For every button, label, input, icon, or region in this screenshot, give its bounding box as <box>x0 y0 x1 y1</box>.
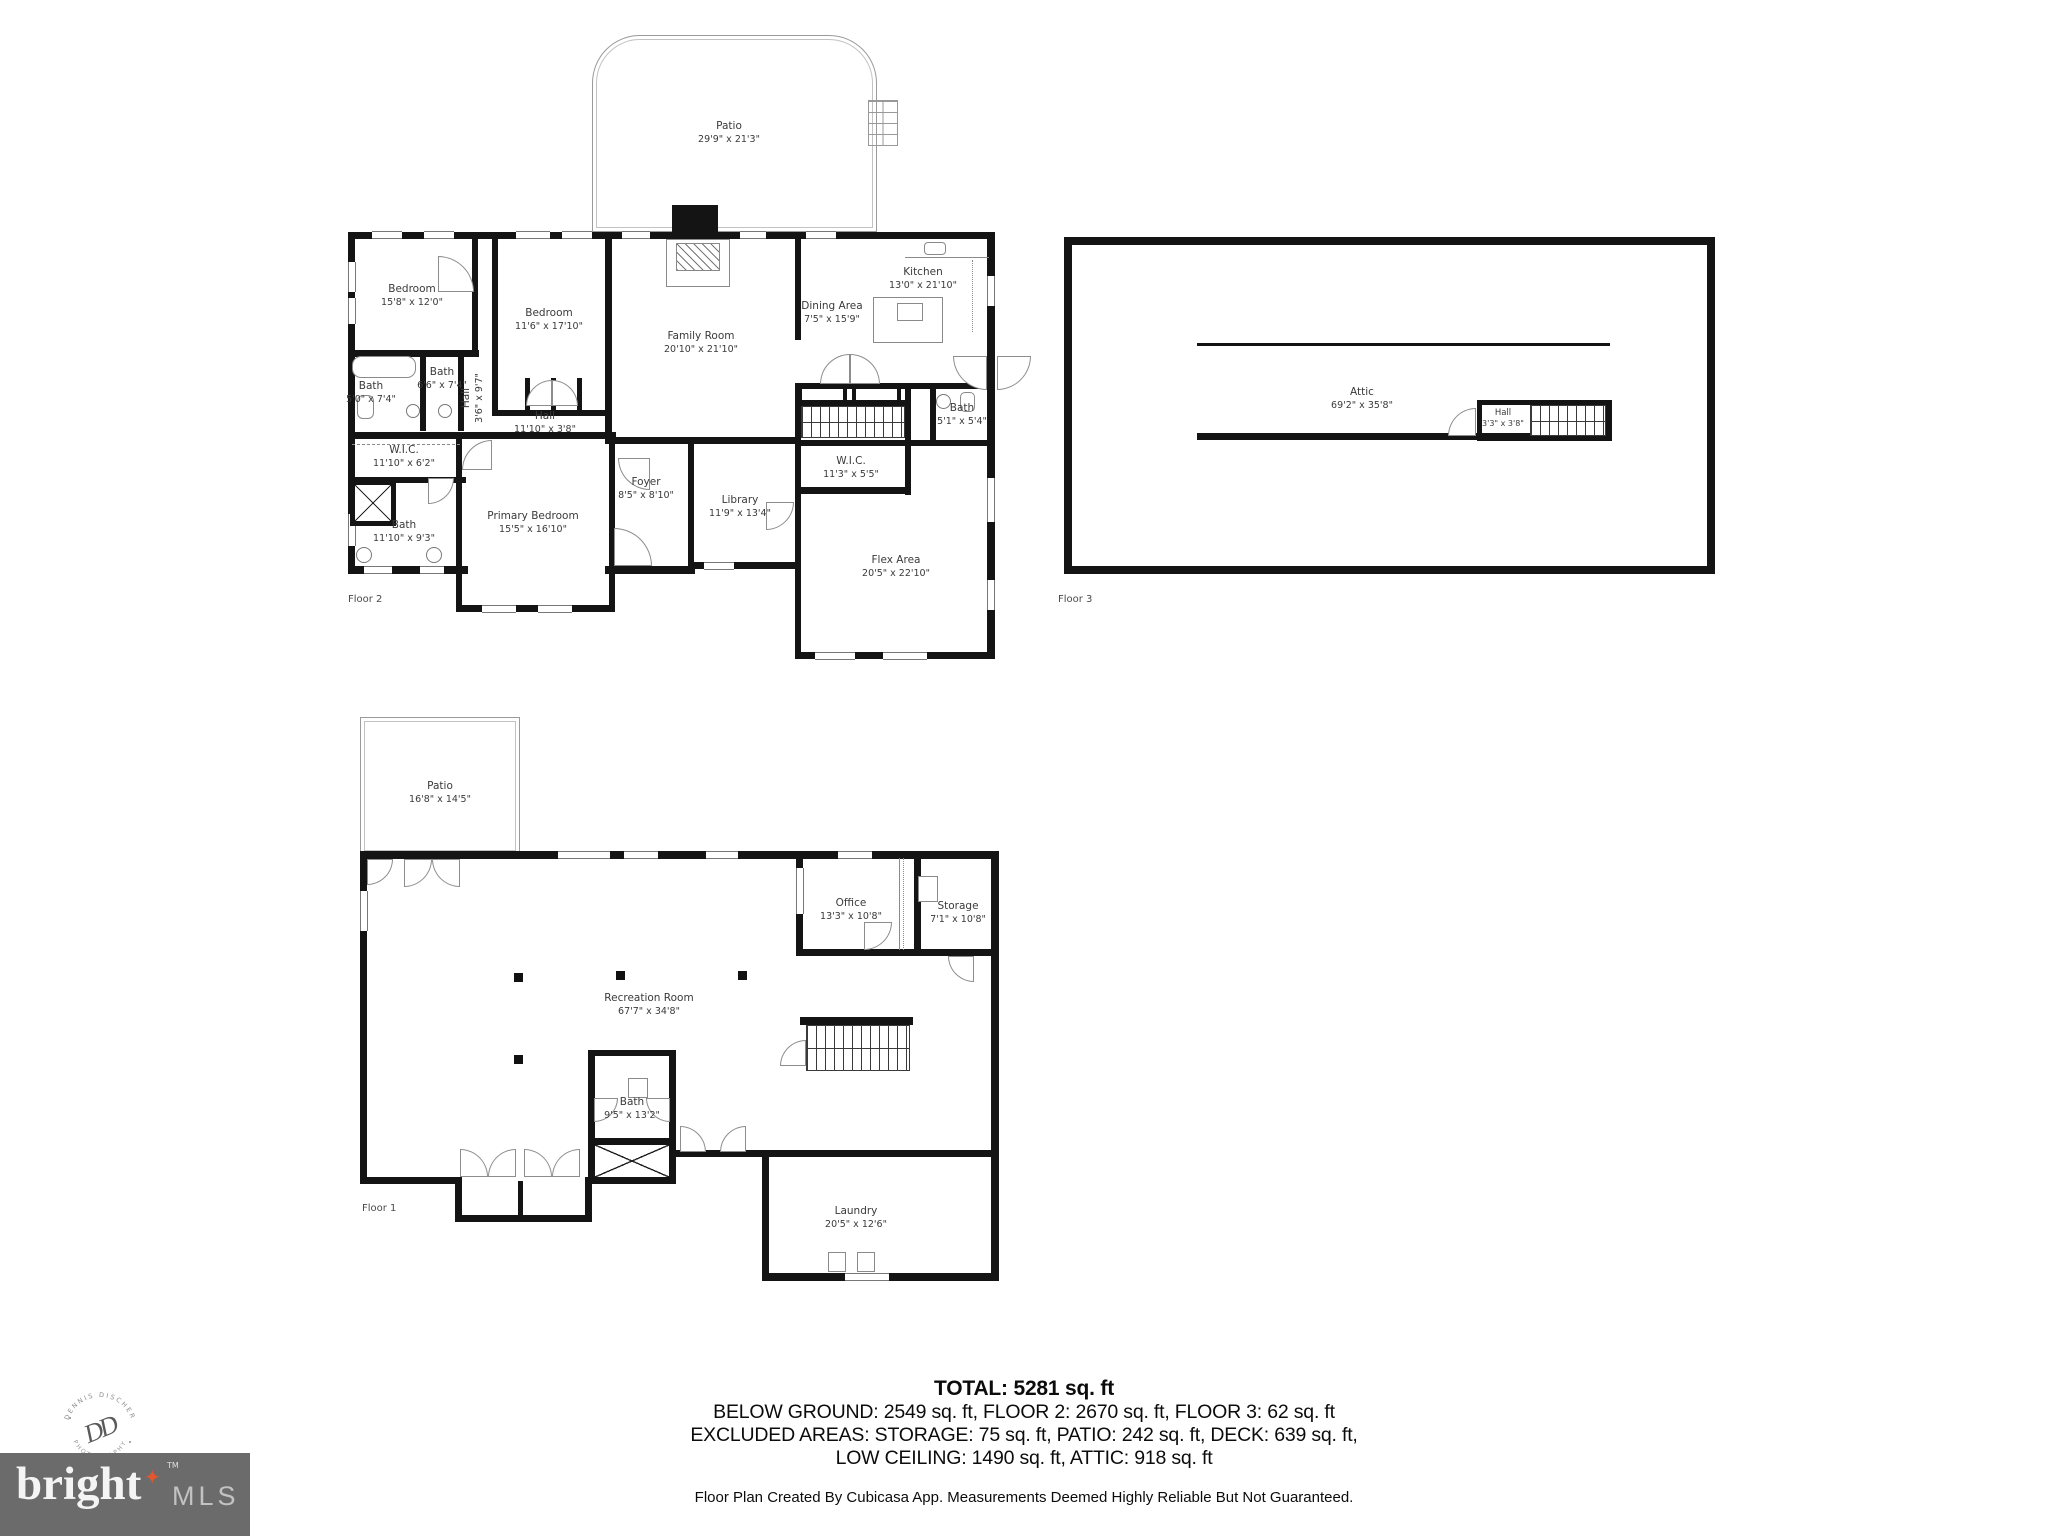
wall <box>800 1017 913 1025</box>
door-arc <box>864 922 892 950</box>
wall <box>1606 400 1612 441</box>
room-label-laundry: Laundry 20'5" x 12'6" <box>776 1205 936 1231</box>
door-arc <box>488 1149 516 1177</box>
window <box>624 851 658 859</box>
wall <box>914 949 999 956</box>
floor1-tag: Floor 1 <box>362 1203 396 1214</box>
summary-line-floors: BELOW GROUND: 2549 sq. ft, FLOOR 2: 2670… <box>0 1401 2048 1424</box>
summary-line-lowceiling: LOW CEILING: 1490 sq. ft, ATTIC: 918 sq.… <box>0 1447 2048 1470</box>
floor3-tag: Floor 3 <box>1058 594 1092 605</box>
room-label-attic-hall: Hall 3'3" x 3'8" <box>1423 408 1583 429</box>
door-arc <box>460 1149 488 1177</box>
window <box>740 231 766 239</box>
sink-fixture <box>426 547 442 563</box>
window <box>482 605 516 613</box>
room-label-floor1-patio: Patio 16'8" x 14'5" <box>360 780 520 806</box>
mls-wordmark: MLS <box>172 1481 240 1512</box>
door-arc <box>948 956 974 982</box>
window <box>372 231 402 239</box>
door-arc <box>820 354 850 384</box>
wall <box>360 1177 462 1184</box>
wall <box>588 1050 676 1056</box>
wall <box>1197 343 1610 346</box>
summary-line-excluded: EXCLUDED AREAS: STORAGE: 75 sq. ft, PATI… <box>0 1424 2048 1447</box>
window <box>706 851 738 859</box>
deck-steps <box>868 100 898 146</box>
window <box>845 1273 889 1281</box>
wall <box>577 378 582 411</box>
door-arc <box>428 478 454 504</box>
window <box>562 231 592 239</box>
divider-line <box>905 257 989 258</box>
column <box>514 1055 523 1064</box>
wall <box>795 440 995 446</box>
window <box>815 652 855 660</box>
disclaimer-note: Floor Plan Created By Cubicasa App. Meas… <box>0 1489 2048 1506</box>
room-label-bath-kitchen: Bath 5'1" x 5'4" <box>882 402 1042 428</box>
room-label-floor1-bath: Bath 9'5" x 13'2" <box>552 1096 712 1122</box>
door-arc <box>432 859 460 887</box>
summary-total: TOTAL: 5281 sq. ft <box>0 1377 2048 1401</box>
room-label-primary-bedroom: Primary Bedroom 15'5" x 16'10" <box>453 510 613 536</box>
room-label-library: Library 11'9" x 13'4" <box>660 494 820 520</box>
sink-fixture <box>356 547 372 563</box>
window <box>538 605 572 613</box>
wall <box>518 1181 523 1217</box>
floor2-tag: Floor 2 <box>348 594 382 605</box>
window <box>883 652 927 660</box>
sink-fixture <box>438 404 452 418</box>
wall <box>672 205 718 238</box>
window <box>987 478 995 522</box>
door-arc <box>720 1126 746 1152</box>
window <box>420 566 444 574</box>
window <box>558 851 610 859</box>
fixture <box>828 1252 846 1272</box>
room-label-bath-hall: Bath 6'6" x 7'4" <box>362 366 522 392</box>
room-label-recreation-room: Recreation Room 67'7" x 34'8" <box>569 992 729 1018</box>
room-label-attic: Attic 69'2" x 35'8" <box>1282 386 1442 412</box>
window <box>838 851 872 859</box>
room-label-deck-patio: Patio 29'9" x 21'3" <box>649 120 809 146</box>
wall <box>796 949 921 956</box>
floorplan-canvas: Patio 29'9" x 21'3" Bedroom 15'8" x 12'0… <box>0 0 2048 1536</box>
trademark-symbol: TM <box>167 1461 179 1470</box>
fireplace-hatch <box>676 243 720 271</box>
crossed-box <box>588 1138 676 1184</box>
wall <box>762 1150 769 1280</box>
sink-fixture <box>406 404 420 418</box>
door-arc <box>614 528 652 566</box>
wall <box>795 487 911 494</box>
door-arc <box>780 1040 806 1066</box>
window <box>360 891 368 931</box>
wall <box>1064 237 1072 574</box>
door-arc <box>850 354 880 384</box>
wall <box>1064 566 1715 574</box>
wall <box>605 437 801 444</box>
room-label-flex-area: Flex Area 20'5" x 22'10" <box>816 554 976 580</box>
window <box>516 231 550 239</box>
column <box>738 971 747 980</box>
fixture <box>857 1252 875 1272</box>
wall <box>455 1215 592 1222</box>
window <box>987 580 995 610</box>
watermark-monogram: DD <box>79 1409 123 1449</box>
wall <box>1064 237 1715 245</box>
brightmls-wordmark: bright <box>16 1457 141 1511</box>
fixture <box>628 1078 648 1098</box>
column <box>514 973 523 982</box>
brightmls-logo: bright ✦ TM MLS <box>0 1453 250 1536</box>
room-label-wic-2: W.I.C. 11'3" x 5'5" <box>771 455 931 481</box>
room-label-dining-area: Dining Area 7'5" x 15'9" <box>752 300 912 326</box>
door-arc <box>524 1149 552 1177</box>
door-arc <box>680 1126 706 1152</box>
room-label-kitchen: Kitchen 13'0" x 21'10" <box>843 266 1003 292</box>
door-arc <box>997 356 1031 390</box>
door-arc <box>404 859 432 887</box>
window <box>704 562 734 570</box>
room-label-hall: Hall 11'10" x 3'8" <box>465 410 625 436</box>
window <box>424 231 454 239</box>
column <box>616 971 625 980</box>
room-label-storage: Storage 7'1" x 10'8" <box>878 900 1038 926</box>
wall <box>762 1150 999 1157</box>
window <box>806 231 836 239</box>
wall <box>605 566 695 574</box>
wall <box>1707 237 1715 574</box>
staircase <box>806 1025 910 1071</box>
room-label-family-room: Family Room 20'10" x 21'10" <box>621 330 781 356</box>
window <box>622 231 650 239</box>
door-arc <box>367 859 393 885</box>
wall <box>456 605 615 612</box>
door-arc <box>552 1149 580 1177</box>
stair-landing <box>798 385 847 404</box>
door-arc <box>552 380 578 406</box>
room-label-wic-1: W.I.C. 11'10" x 6'2" <box>324 444 484 470</box>
window <box>364 566 392 574</box>
fixture <box>924 242 946 255</box>
sparkle-star-icon: ✦ <box>144 1465 161 1489</box>
room-label-bedroom-2: Bedroom 11'6" x 17'10" <box>469 307 629 333</box>
room-label-bedroom-1: Bedroom 15'8" x 12'0" <box>332 283 492 309</box>
